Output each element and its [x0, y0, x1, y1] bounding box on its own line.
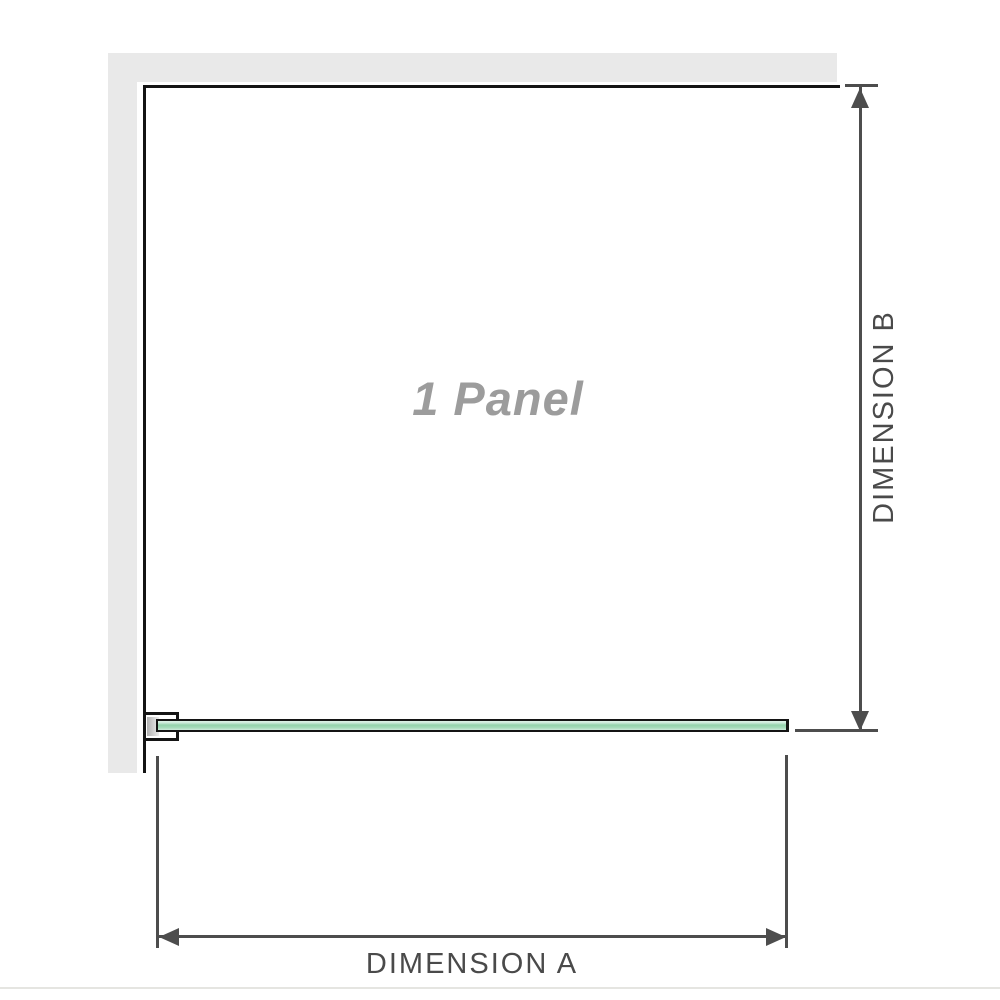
dimension-b-tick-top [845, 84, 878, 87]
floor-baseline [0, 987, 1000, 989]
dimension-a-arrowhead-right-icon [766, 928, 786, 946]
dimension-a-arrowhead-left-icon [159, 928, 179, 946]
dimension-b-arrowhead-down-icon [851, 711, 869, 731]
glass-panel-bar [156, 719, 789, 732]
dimension-a-label: DIMENSION A [157, 948, 787, 981]
panel-frame-top-line [143, 85, 840, 88]
wall-left-band [108, 53, 137, 773]
panel-frame-left-line [143, 85, 146, 773]
dimension-a-extension-line-left [156, 756, 159, 948]
dimension-a-extension-line-right [785, 755, 788, 948]
panel-count-label: 1 Panel [343, 371, 653, 426]
dimension-b-arrowhead-up-icon [851, 88, 869, 108]
dimension-b-line [859, 87, 862, 731]
shower-panel-dimension-diagram: 1 Panel DIMENSION B DIMENSION A [0, 0, 1000, 1000]
dimension-a-line [157, 935, 787, 938]
wall-top-band [108, 53, 837, 82]
dimension-b-label: DIMENSION B [867, 317, 901, 517]
